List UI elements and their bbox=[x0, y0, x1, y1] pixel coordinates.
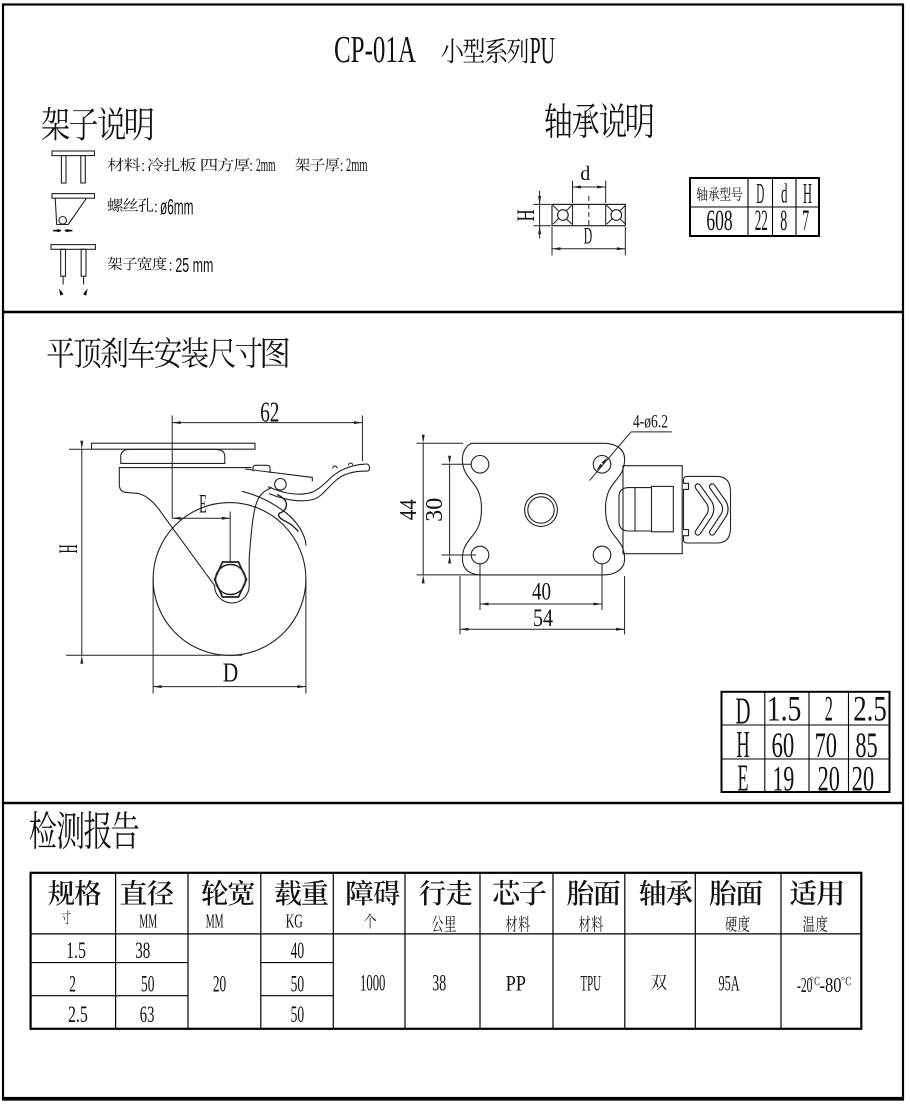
svg-text::: : bbox=[141, 158, 145, 175]
svg-text:D: D bbox=[584, 224, 592, 250]
svg-text:PP: PP bbox=[506, 971, 526, 996]
svg-text:95A: 95A bbox=[718, 971, 739, 996]
svg-text:2: 2 bbox=[825, 689, 833, 729]
svg-text:-80: -80 bbox=[820, 973, 842, 997]
svg-text::: : bbox=[249, 158, 253, 175]
svg-text:d: d bbox=[580, 163, 590, 185]
svg-text::: : bbox=[169, 258, 173, 275]
svg-text:E: E bbox=[738, 758, 749, 800]
svg-text:30: 30 bbox=[422, 498, 448, 522]
svg-text:MM: MM bbox=[206, 911, 224, 933]
svg-text:63: 63 bbox=[140, 1002, 155, 1027]
svg-text:50: 50 bbox=[291, 972, 305, 997]
svg-text:20: 20 bbox=[213, 972, 226, 997]
svg-text:2mm: 2mm bbox=[346, 156, 368, 176]
svg-text:7: 7 bbox=[802, 204, 809, 237]
svg-text:1000: 1000 bbox=[360, 971, 385, 996]
svg-text:38: 38 bbox=[432, 971, 446, 996]
svg-text:MM: MM bbox=[139, 911, 157, 933]
svg-text:50: 50 bbox=[141, 972, 154, 997]
svg-text:2.5: 2.5 bbox=[68, 1002, 88, 1027]
svg-text:25 mm: 25 mm bbox=[175, 255, 213, 277]
svg-text:KG: KG bbox=[286, 911, 303, 933]
svg-text:62: 62 bbox=[260, 397, 279, 429]
svg-text:40: 40 bbox=[291, 938, 305, 963]
svg-text:44: 44 bbox=[396, 499, 422, 520]
svg-text:PU: PU bbox=[530, 30, 555, 72]
svg-text:2.5: 2.5 bbox=[853, 689, 887, 729]
svg-text:ø6mm: ø6mm bbox=[160, 195, 194, 220]
svg-text:20: 20 bbox=[852, 759, 875, 799]
svg-text:CP-01A: CP-01A bbox=[334, 29, 416, 71]
svg-text:608: 608 bbox=[706, 204, 732, 237]
svg-text::: : bbox=[340, 158, 344, 175]
svg-text::: : bbox=[154, 199, 158, 216]
svg-text:20: 20 bbox=[818, 759, 840, 799]
svg-text:TPU: TPU bbox=[581, 971, 601, 996]
svg-text:-20: -20 bbox=[797, 973, 813, 997]
svg-text:2: 2 bbox=[69, 972, 76, 997]
svg-text:50: 50 bbox=[291, 1002, 305, 1027]
svg-text:38: 38 bbox=[135, 938, 150, 963]
svg-text:40: 40 bbox=[532, 579, 551, 606]
svg-text:8: 8 bbox=[780, 204, 787, 237]
svg-text:4-ø6.2: 4-ø6.2 bbox=[633, 413, 668, 433]
svg-text:2mm: 2mm bbox=[256, 156, 276, 176]
svg-text:H: H bbox=[53, 544, 83, 553]
svg-text:D: D bbox=[223, 658, 239, 688]
svg-text:E: E bbox=[199, 489, 207, 518]
svg-text:1.5: 1.5 bbox=[767, 689, 802, 729]
svg-text:22: 22 bbox=[755, 204, 768, 237]
svg-text:H: H bbox=[513, 209, 540, 221]
svg-text:54: 54 bbox=[533, 605, 553, 632]
svg-text:19: 19 bbox=[773, 759, 795, 799]
svg-text:1.5: 1.5 bbox=[66, 938, 86, 963]
